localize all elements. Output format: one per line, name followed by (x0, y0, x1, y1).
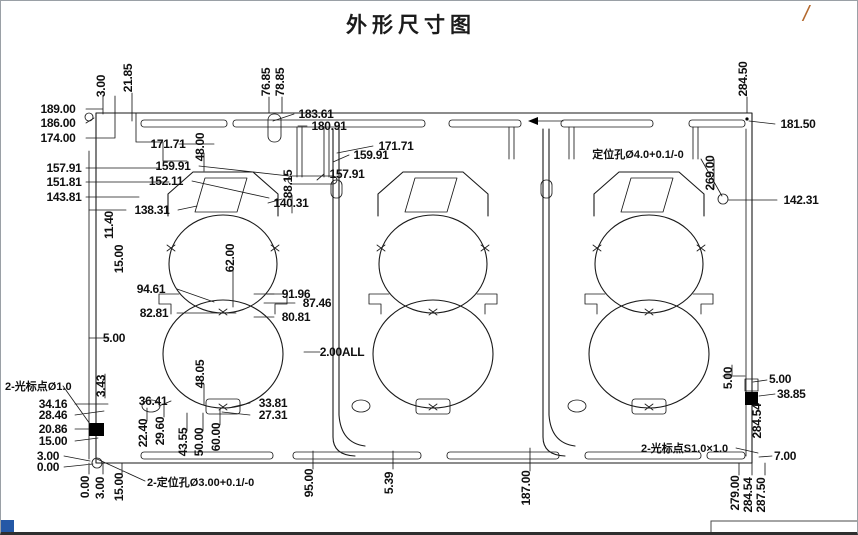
dim-label: 151.81 (47, 175, 83, 189)
drawing-line (297, 127, 329, 177)
panel-slot (449, 120, 521, 127)
dim-label: 38.85 (777, 387, 806, 401)
corner-marker (1, 520, 14, 532)
dim-label: 3.00 (93, 476, 107, 499)
drawing-line (96, 113, 752, 463)
drawing-line (543, 129, 565, 456)
dim-label: 15.00 (112, 472, 126, 501)
feed-arrow-icon (528, 117, 538, 125)
dim-label: 15.00 (112, 244, 126, 273)
drawing-line (594, 172, 704, 216)
dim-label: 50.00 (192, 427, 206, 456)
dim-label: 76.85 (259, 67, 273, 96)
locating-hole (718, 194, 728, 204)
engineering-drawing-svg: 189.00186.00174.00157.91151.81143.81138.… (1, 1, 857, 532)
dim-label: 2.00ALL (320, 345, 365, 359)
drawing-line (405, 178, 457, 212)
note-label: 2-定位孔Ø3.00+0.1/-0 (147, 475, 254, 489)
unit-circle (595, 215, 703, 313)
dim-label: 29.60 (153, 416, 167, 445)
dim-label: 94.61 (137, 282, 166, 296)
dim-label: 5.00 (769, 372, 792, 386)
dim-label: 186.00 (41, 116, 77, 130)
dim-label: 48.05 (193, 359, 207, 388)
drawing-line (369, 294, 389, 314)
dim-label: 157.91 (47, 161, 83, 175)
dim-label: 284.54 (741, 477, 755, 513)
unit-circle (379, 215, 487, 313)
dim-label: 3.43 (94, 374, 108, 397)
panel-slot (689, 120, 745, 127)
note-label: 2-光标点S1.0×1.0 (641, 441, 728, 455)
dim-label: 48.00 (193, 132, 207, 161)
drawing-line (549, 129, 575, 446)
drawing-line (168, 172, 278, 216)
dim-label: 174.00 (41, 131, 77, 145)
dim-label: 28.46 (39, 408, 68, 422)
note-label: 定位孔Ø4.0+0.1/-0 (592, 147, 683, 161)
dim-label: 159.91 (156, 159, 192, 173)
drawing-line (621, 178, 673, 212)
drawing-line (219, 309, 227, 315)
panel-slot (561, 120, 653, 127)
dim-label: 62.00 (223, 243, 237, 272)
dim-label: 143.81 (47, 190, 83, 204)
dim-label: 269.00 (703, 155, 717, 191)
dim-label: 284.50 (736, 61, 750, 97)
dim-label: 152.11 (149, 174, 184, 188)
dim-label: 279.00 (728, 475, 742, 511)
panel-slot (141, 120, 227, 127)
dim-label: 27.31 (259, 408, 288, 422)
dim-label: 36.41 (139, 394, 168, 408)
dim-label: 82.81 (140, 306, 169, 320)
tooling-slot (352, 400, 370, 412)
dim-label: 180.91 (312, 119, 348, 133)
dim-label: 187.00 (519, 470, 533, 506)
drawing-line (585, 294, 605, 314)
dim-label: 95.00 (302, 468, 316, 497)
dim-label: 43.55 (176, 427, 190, 456)
drawing-line (645, 404, 653, 410)
dim-label: 78.85 (273, 67, 287, 96)
dim-label: 142.31 (784, 193, 820, 207)
dim-label: 15.00 (39, 434, 68, 448)
dim-label: 189.00 (41, 102, 77, 116)
dim-label: 138.31 (135, 203, 171, 217)
locating-hole (745, 117, 748, 120)
fiducial-mark (89, 423, 104, 436)
drawing-line (693, 294, 713, 314)
dim-label: 5.00 (721, 366, 735, 389)
fiducial-mark (745, 392, 758, 405)
dim-label: 87.46 (303, 296, 332, 310)
dim-label: 140.31 (274, 196, 310, 210)
drawing-line (711, 521, 857, 532)
dim-label: 7.00 (774, 449, 797, 463)
dim-label: 3.00 (94, 74, 108, 97)
dim-label: 22.40 (136, 418, 150, 447)
unit-circle (589, 300, 709, 408)
panel-slot (268, 114, 281, 142)
dim-label: 181.50 (781, 117, 817, 131)
dim-label: 11.40 (102, 210, 116, 238)
dim-label: 171.71 (151, 137, 187, 151)
dim-label: 159.91 (354, 148, 390, 162)
dim-label: 21.85 (121, 63, 135, 92)
dim-label: 80.81 (282, 310, 311, 324)
unit-circle (373, 300, 493, 408)
panel-slot (141, 452, 273, 459)
dim-label: 0.00 (78, 475, 92, 498)
dim-label: 88.15 (281, 169, 295, 198)
dim-label: 5.39 (382, 471, 396, 494)
drawing-line (429, 404, 437, 410)
dim-label: 5.00 (103, 331, 126, 345)
drawing-line (429, 309, 437, 315)
drawing-sheet: 外形尺寸图 / 189.00186.00174.00157.91151.8114… (0, 0, 858, 535)
panel-slot (293, 452, 421, 459)
dim-label: 157.91 (330, 167, 366, 181)
dim-label: 284.54 (750, 403, 764, 439)
dim-label: 0.00 (37, 460, 60, 474)
tooling-slot (568, 400, 586, 412)
panel-slot (447, 452, 559, 459)
dim-label: 287.50 (754, 477, 768, 513)
drawing-line (378, 172, 488, 216)
drawing-line (477, 294, 497, 314)
drawing-line (645, 309, 653, 315)
unit-circle (163, 300, 283, 408)
note-label: 2-光标点Ø1.0 (5, 379, 72, 393)
dim-label: 60.00 (209, 422, 223, 451)
